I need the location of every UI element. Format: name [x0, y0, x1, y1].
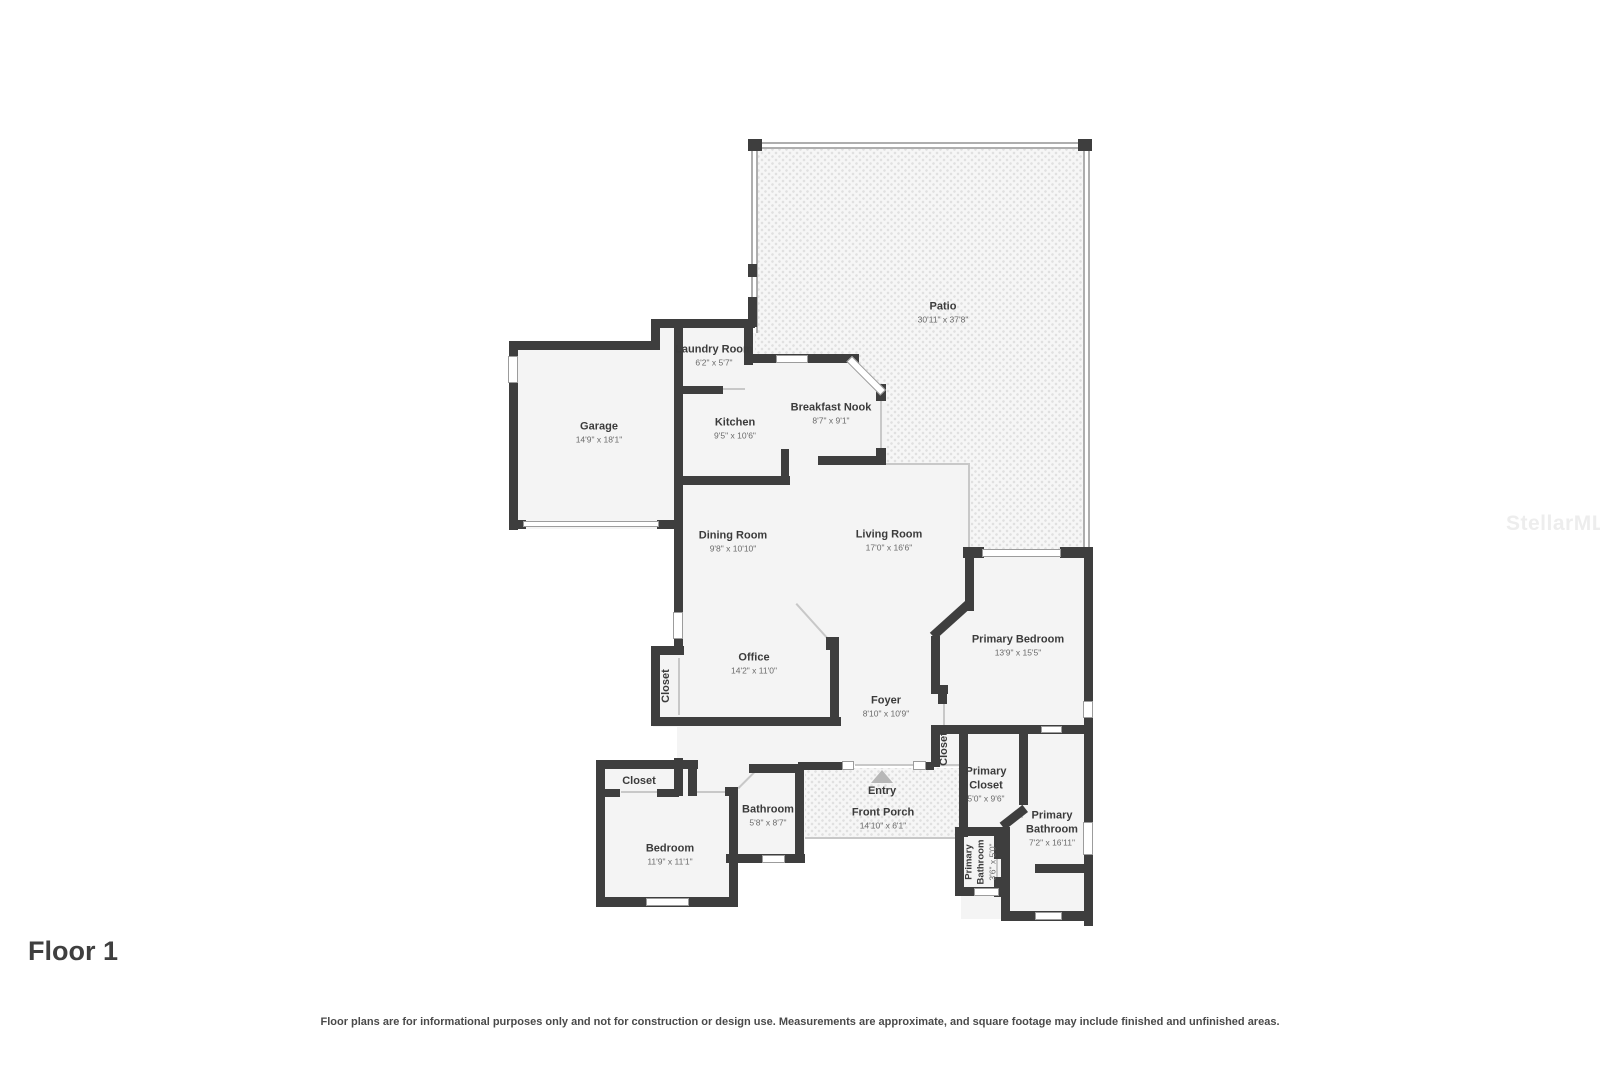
wall: [596, 760, 605, 907]
window: [673, 612, 683, 639]
room-label-patio: Patio30'11" x 37'8": [918, 300, 969, 325]
door-opening: [1041, 726, 1062, 733]
screen-wall: [1083, 149, 1090, 551]
room-label-living: Living Room17'0" x 16'6": [856, 528, 923, 553]
room-label-office-closet: Closet: [660, 669, 674, 703]
wall: [798, 762, 843, 770]
floor-label: Floor 1: [28, 936, 118, 967]
room-label-breakfast-nook: Breakfast Nook8'7" x 9'1": [791, 401, 872, 426]
entry-arrow-icon: [871, 770, 893, 783]
room-label-entry: Entry: [868, 785, 896, 799]
window: [1083, 701, 1093, 718]
wall: [674, 476, 790, 485]
garage-door: [523, 521, 659, 527]
wall: [830, 645, 839, 726]
bedroom-floor: [598, 761, 738, 906]
room-label-primary-wc: Primary Bathroom3'6" x 5'0": [963, 833, 998, 891]
door-opening: [697, 791, 726, 793]
wall: [509, 341, 660, 350]
door-sidelight: [842, 761, 854, 770]
wall: [603, 789, 620, 797]
screen-wall: [880, 396, 882, 454]
room-label-front-porch: Front Porch14'10" x 6'1": [852, 806, 914, 831]
closet-slider-line: [621, 791, 658, 793]
wall: [657, 789, 679, 797]
door-opening: [678, 658, 680, 715]
wall: [931, 725, 1093, 734]
room-label-foyer: Foyer8'10" x 10'9": [863, 694, 910, 719]
room-label-laundry: Laundry Room6'2" x 5'7": [675, 343, 753, 368]
wall: [748, 139, 762, 151]
screen-wall: [751, 142, 1090, 149]
room-label-primary-closet: Primary Closet5'0" x 9'6": [959, 766, 1013, 805]
window: [508, 356, 518, 383]
wall: [651, 717, 841, 726]
room-label-dining: Dining Room9'8" x 10'10": [699, 529, 767, 554]
wall: [651, 646, 660, 726]
door-opening: [722, 388, 745, 390]
room-label-bathroom: Bathroom5'8" x 8'7": [742, 803, 794, 828]
floor-plan: Patio30'11" x 37'8" Laundry Room6'2" x 5…: [0, 0, 1600, 1066]
window: [776, 355, 808, 363]
window: [982, 549, 1061, 557]
room-label-primary-bathroom: Primary Bathroom7'2" x 16'11": [1021, 810, 1083, 849]
window: [1035, 912, 1062, 920]
room-label-kitchen: Kitchen9'5" x 10'6": [714, 416, 756, 441]
window: [1083, 822, 1093, 855]
room-label-foyer-closet: Closet: [938, 732, 952, 766]
window: [762, 855, 785, 863]
patio-door-line: [968, 465, 970, 553]
wall: [938, 690, 947, 704]
wall: [1078, 139, 1092, 151]
wall: [651, 319, 755, 328]
wall: [781, 449, 789, 484]
room-label-bedroom: Bedroom11'9" x 11'1": [646, 842, 694, 867]
wall: [818, 456, 886, 465]
wall: [1084, 547, 1093, 701]
disclaimer-text: Floor plans are for informational purpos…: [0, 1016, 1600, 1028]
porch-edge-line: [805, 837, 963, 839]
room-label-garage: Garage14'9" x 18'1": [576, 420, 623, 445]
patio-door-line: [886, 463, 970, 465]
wall: [674, 386, 723, 394]
wall: [795, 764, 804, 863]
front-door-line: [855, 764, 913, 766]
wall: [748, 264, 757, 277]
wall: [729, 787, 738, 907]
wall: [688, 764, 697, 796]
window: [646, 898, 689, 906]
room-label-office: Office14'2" x 11'0": [731, 651, 777, 676]
watermark: StellarMLS: [1506, 512, 1600, 536]
room-label-primary-bedroom: Primary Bedroom13'9" x 15'5": [972, 633, 1064, 658]
room-label-bedroom-closet: Closet: [622, 775, 656, 789]
wall: [1019, 731, 1028, 805]
door-sidelight: [913, 761, 926, 770]
wall: [1035, 864, 1085, 873]
door-opening: [943, 703, 945, 726]
